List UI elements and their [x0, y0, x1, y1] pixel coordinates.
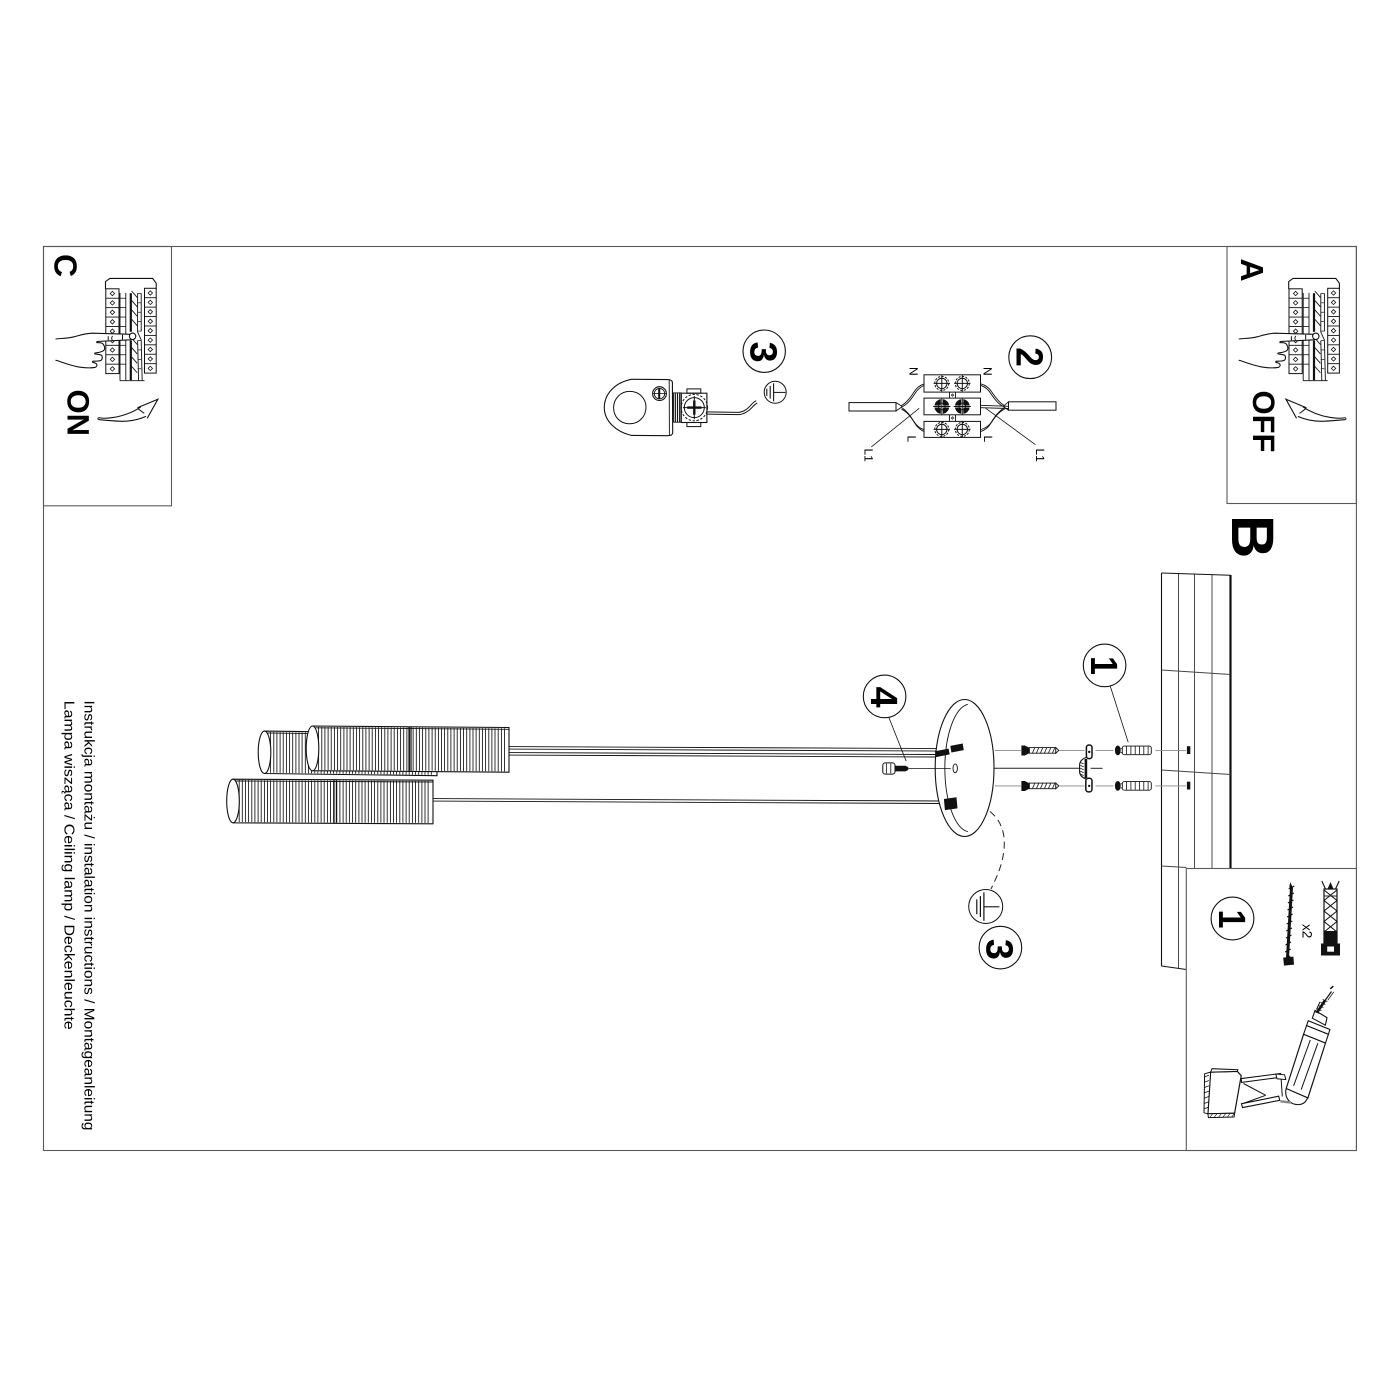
svg-text:OFF: OFF [1246, 391, 1281, 453]
svg-text:4: 4 [862, 687, 904, 708]
svg-text:2: 2 [1008, 347, 1050, 367]
svg-text:L: L [905, 436, 919, 443]
svg-text:ON: ON [61, 390, 96, 437]
svg-text:L1: L1 [1033, 449, 1047, 463]
svg-text:3: 3 [978, 939, 1020, 960]
svg-text:N: N [906, 367, 920, 376]
svg-text:B: B [1219, 515, 1286, 558]
svg-text:3: 3 [742, 342, 784, 363]
svg-text:A: A [1234, 259, 1270, 282]
svg-text:Lampa wisząca / Ceiling lamp /: Lampa wisząca / Ceiling lamp / Deckenleu… [60, 701, 76, 1030]
svg-text:C: C [48, 254, 84, 277]
svg-text:L1: L1 [862, 449, 876, 463]
svg-text:1: 1 [1210, 910, 1252, 929]
svg-text:x2: x2 [1300, 924, 1315, 938]
svg-text:1: 1 [1082, 656, 1124, 675]
svg-text:N: N [981, 367, 995, 376]
svg-text:L: L [981, 436, 995, 443]
svg-text:Instrukcja montażu / instalati: Instrukcja montażu / instalation instruc… [81, 701, 97, 1131]
